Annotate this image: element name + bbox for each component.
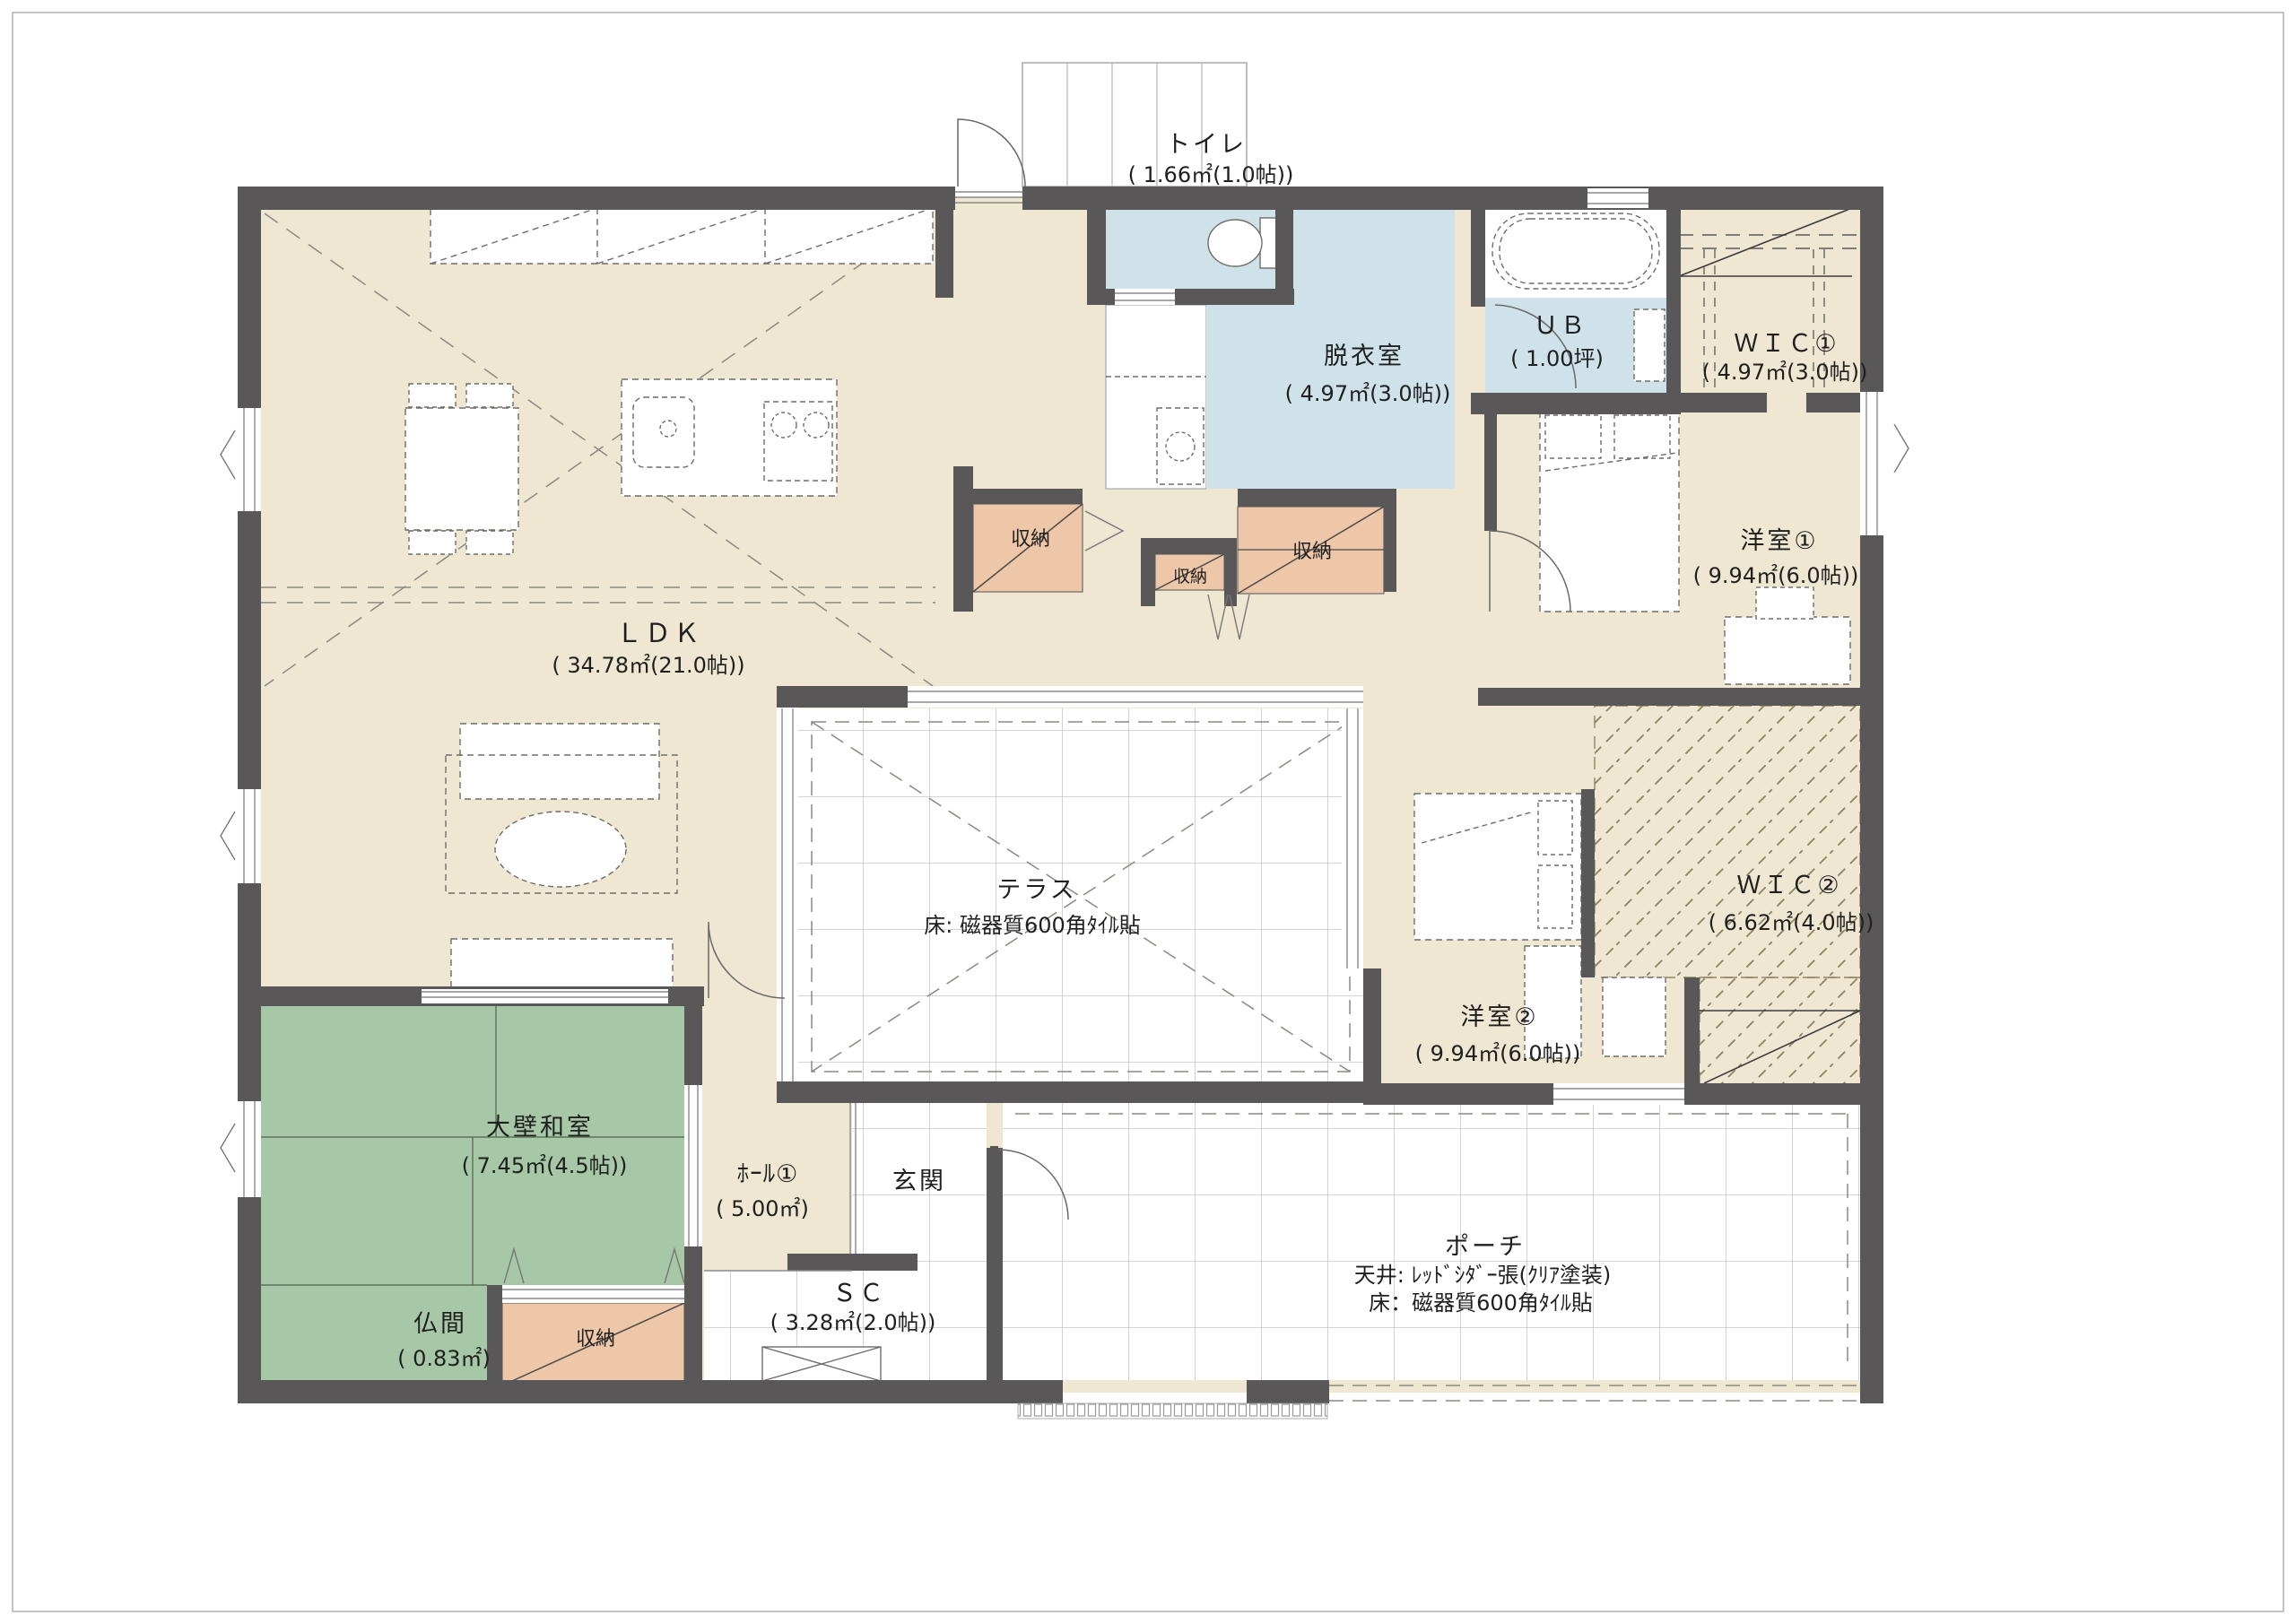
terrace-grid: [798, 708, 1363, 1081]
floorplan-drawing: トイレ ( 1.66㎡(1.0帖)) 脱衣室 ( 4.97㎡(3.0帖)) ＵＢ…: [0, 0, 2296, 1624]
terrace-label: テラス: [996, 876, 1076, 904]
sofa-icon: [460, 724, 659, 799]
datsuishitsu-area: ( 4.97㎡(3.0帖)): [1285, 381, 1451, 406]
porch-grid: [1003, 1103, 1860, 1380]
wic2-area: ( 6.62㎡(4.0帖)): [1709, 910, 1874, 935]
dining-table-icon: [405, 408, 518, 530]
wic2-label: ＷＩＣ②: [1736, 872, 1841, 899]
butsuma-label: 仏間: [413, 1310, 467, 1338]
bed-icon: [1540, 405, 1679, 612]
desk-chair-icon: [1756, 587, 1813, 619]
wic1-area: ( 4.97㎡(3.0帖)): [1702, 360, 1868, 385]
toilet-bowl-icon: [1208, 220, 1262, 266]
wic2-lower: [1700, 977, 1860, 1087]
wic1-label: ＷＩＣ①: [1734, 330, 1839, 358]
hall1-label: ﾎｰﾙ①: [737, 1160, 799, 1188]
genkan-door-leaf: [990, 1146, 998, 1223]
washitsu-area: ( 7.45㎡(4.5帖)): [462, 1153, 628, 1178]
yoshitsu2-area: ( 9.94㎡(6.0帖)): [1415, 1041, 1581, 1066]
storage-label: 収納: [1173, 567, 1207, 586]
window-left-1: [238, 408, 261, 511]
wic2-upper: [1595, 706, 1860, 977]
genkan-label: 玄関: [892, 1168, 946, 1195]
coffee-table-icon: [495, 812, 626, 887]
terrace-floor-note: 床: 磁器質600角ﾀｲﾙ貼: [924, 913, 1141, 938]
window-left-3: [238, 1101, 261, 1197]
porch-floor-note: 床：磁器質600角ﾀｲﾙ貼: [1369, 1290, 1593, 1316]
porch-ceiling-note: 天井: ﾚｯﾄﾞｼﾀﾞｰ張(ｸﾘｱ塗装): [1354, 1263, 1611, 1288]
sc-label: ＳＣ: [832, 1280, 886, 1307]
sc-area: ( 3.28㎡(2.0帖)): [770, 1310, 936, 1335]
closet-box-icon: [1603, 977, 1665, 1056]
window-right-1: [1860, 392, 1883, 535]
storage-label: 収納: [1292, 541, 1332, 563]
bed-icon: [1414, 794, 1581, 940]
toilet-label: トイレ: [1166, 131, 1247, 159]
butsuma-area: ( 0.83㎡): [397, 1346, 491, 1371]
terrace-sliding-right: [1342, 708, 1363, 968]
storage-label: 収納: [1011, 528, 1050, 551]
chair-icon: [409, 531, 456, 554]
ub-label: ＵＢ: [1534, 312, 1587, 340]
ldk-label: ＬＤＫ: [616, 618, 702, 648]
toilet-area: ( 1.66㎡(1.0帖)): [1128, 162, 1294, 187]
porch-step-strip: [1018, 1403, 1327, 1419]
yoshitsu1-area: ( 9.94㎡(6.0帖)): [1693, 563, 1859, 588]
window-yoshitsu2-south: [1553, 1083, 1684, 1105]
sliding-storage-washitsu: [502, 1285, 684, 1303]
yoshitsu2-label: 洋室②: [1460, 1003, 1538, 1031]
storage-label: 収納: [576, 1328, 615, 1350]
window-top-ub: [1587, 188, 1648, 208]
washitsu-sliding-east: [684, 1085, 702, 1246]
genkan-grid: [852, 1103, 987, 1380]
washitsu-label: 大壁和室: [486, 1114, 594, 1142]
hall1-area: ( 5.00㎡): [716, 1196, 809, 1221]
floorplan-page: トイレ ( 1.66㎡(1.0帖)) 脱衣室 ( 4.97㎡(3.0帖)) ＵＢ…: [0, 0, 2296, 1624]
porch-label: ポーチ: [1445, 1233, 1526, 1261]
tv-board-icon: [451, 939, 673, 989]
ub-area: ( 1.00坪): [1510, 346, 1604, 371]
yoshitsu1-label: 洋室①: [1740, 527, 1818, 555]
window-left-2: [238, 789, 261, 883]
terrace-sliding-left: [777, 708, 798, 1081]
ldk-area: ( 34.78㎡(21.0帖)): [552, 653, 744, 678]
toilet-door-opening: [1115, 289, 1175, 305]
chair-icon: [466, 384, 513, 407]
chair-icon: [409, 384, 456, 407]
terrace-sliding-top: [908, 686, 1363, 708]
chair-icon: [466, 531, 513, 554]
datsuishitsu-label: 脱衣室: [1324, 343, 1405, 370]
shower-counter-icon: [1634, 309, 1665, 381]
washstand-area: [1106, 305, 1206, 489]
tub-zone: [1485, 208, 1666, 298]
desk-icon: [1725, 617, 1850, 684]
washitsu-sliding-north: [422, 989, 668, 1003]
